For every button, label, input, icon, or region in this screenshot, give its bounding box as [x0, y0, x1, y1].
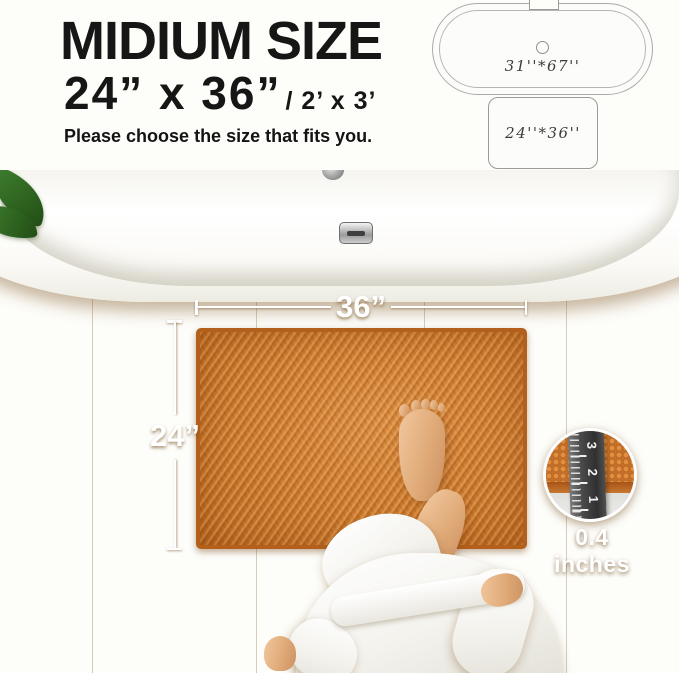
foot-toe: [438, 403, 445, 412]
mat-dimension-label: 24''*36'': [489, 124, 597, 142]
ruler-number: 2: [585, 468, 600, 476]
bathroom-photo: 36” 24”: [0, 170, 679, 673]
arrow-line: [174, 460, 177, 548]
height-dimension-arrow: 24”: [153, 320, 197, 550]
width-label: 36”: [331, 289, 391, 325]
bathtub-outline-diagram: 31''*67'': [432, 3, 653, 95]
ruler-number: 3: [584, 441, 599, 449]
tub-overflow-slot: [347, 231, 365, 236]
drain-icon: [536, 41, 549, 54]
size-secondary-text: / 2’ x 3’: [285, 87, 376, 116]
hand: [264, 636, 296, 671]
width-dimension-arrow: 36”: [195, 294, 527, 320]
size-line: 24” x 36” / 2’ x 3’: [64, 66, 377, 120]
ruler-number: 1: [586, 495, 601, 503]
product-infographic: MIDIUM SIZE 24” x 36” / 2’ x 3’ Please c…: [0, 0, 679, 673]
arrow-line: [198, 306, 332, 309]
bare-foot: [399, 409, 445, 501]
bath-mat: [196, 328, 527, 549]
bathtub-edge: [0, 170, 679, 302]
foot-toe: [430, 400, 438, 410]
size-primary-text: 24” x 36”: [64, 66, 281, 120]
faucet-icon: [529, 0, 559, 10]
header-section: MIDIUM SIZE 24” x 36” / 2’ x 3’ Please c…: [0, 0, 679, 170]
arrow-line: [391, 306, 525, 309]
thickness-label: 0.4 inches: [534, 524, 650, 578]
thickness-inset-circle: 1 2 3: [543, 428, 637, 522]
page-title: MIDIUM SIZE: [60, 10, 382, 72]
ruler-icon: 1 2 3: [567, 428, 606, 522]
height-label: 24”: [145, 418, 205, 454]
tub-overflow-fitting: [339, 222, 373, 244]
choose-size-hint: Please choose the size that fits you.: [64, 126, 372, 147]
mat-outline-diagram: 24''*36'': [488, 97, 598, 169]
arrow-end-cap: [525, 300, 528, 315]
bathtub-dimension-label: 31''*67'': [433, 57, 652, 75]
arrow-end-cap: [167, 548, 182, 551]
arrow-line: [174, 322, 177, 415]
